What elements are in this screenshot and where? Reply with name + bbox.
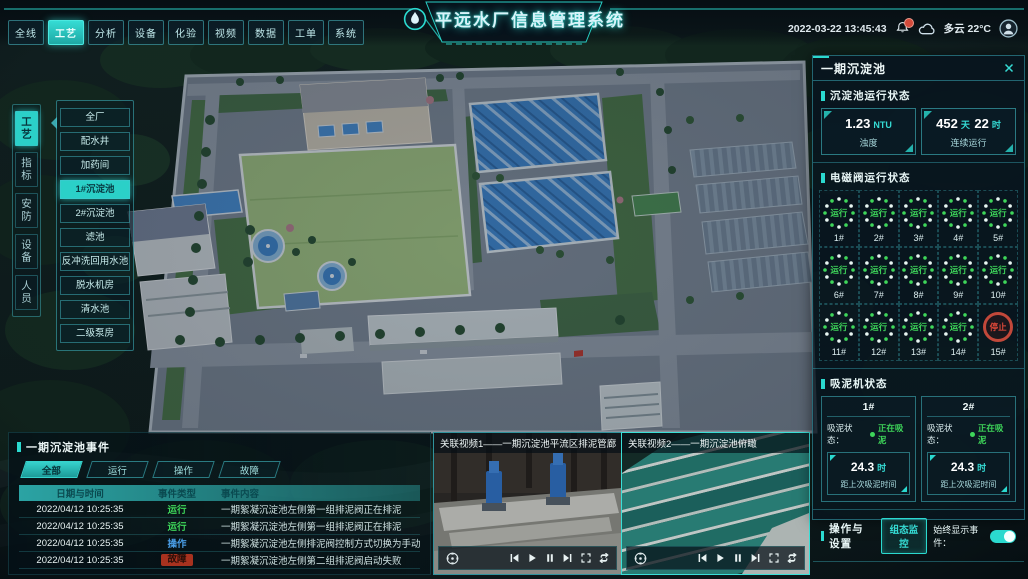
- fullscreen-icon[interactable]: [581, 553, 591, 563]
- submenu-item-qingshuichi[interactable]: 清水池: [60, 300, 130, 319]
- mud-machine-card-2: 2# 吸泥状态：正在吸泥 24.3时距上次吸泥时间: [921, 396, 1016, 502]
- submenu-item-jiayaojian[interactable]: 加药间: [60, 156, 130, 175]
- panel-title: 一期沉淀池: [821, 60, 1002, 77]
- valve-status-grid: 运行1# 运行2# 运行3# 运行4# 运行5# 运行6# 运行7# 运行8# …: [819, 190, 1018, 361]
- always-show-events-toggle[interactable]: [990, 530, 1016, 543]
- video-1-title: 关联视频1——一期沉淀池平流区排泥管廊: [434, 433, 621, 453]
- video-feed-1[interactable]: 关联视频1——一期沉淀池平流区排泥管廊: [433, 432, 622, 575]
- page-title: 平远水厂信息管理系统: [435, 6, 625, 31]
- video-2-title: 关联视频2——一期沉淀池俯瞰: [622, 433, 809, 453]
- skip-back-icon[interactable]: [509, 553, 519, 563]
- valve-indicator-4: 运行4#: [938, 190, 978, 247]
- ptz-control-icon[interactable]: [634, 552, 647, 565]
- submenu-item-tuoshuijifang[interactable]: 脱水机房: [60, 276, 130, 295]
- valve-indicator-7: 运行7#: [859, 247, 899, 304]
- user-avatar[interactable]: [999, 19, 1018, 38]
- play-icon[interactable]: [527, 553, 537, 563]
- fullscreen-icon[interactable]: [769, 553, 779, 563]
- nav-tab-shuju[interactable]: 数据: [248, 20, 284, 45]
- section-title-run-status: 沉淀池运行状态: [830, 88, 911, 103]
- submenu-item-erjibengfang[interactable]: 二级泵房: [60, 324, 130, 343]
- event-row: 2022/04/12 10:25:35运行一期絮凝沉淀池左侧第一组排泥阀正在排泥: [19, 518, 420, 535]
- nav-tab-huayan[interactable]: 化验: [168, 20, 204, 45]
- events-table-header: 日期与时间事件类型事件内容: [19, 485, 420, 501]
- event-filter-tabs: 全部 运行 操作 故障: [9, 459, 430, 478]
- sidebar-tab-gongyi[interactable]: 工艺: [15, 111, 38, 146]
- nav-tab-gongyi[interactable]: 工艺: [48, 20, 84, 45]
- pause-icon[interactable]: [733, 553, 743, 563]
- nav-tab-shipin[interactable]: 视频: [208, 20, 244, 45]
- weather-cloud-icon: [918, 23, 936, 35]
- turbidity-stat-card: 1.23NTU 浊度: [821, 108, 916, 155]
- main-nav: 全线 工艺 分析 设备 化验 视频 数据 工单 系统: [8, 20, 364, 45]
- valve-indicator-3: 运行3#: [899, 190, 939, 247]
- submenu-item-lvchi[interactable]: 滤池: [60, 228, 130, 247]
- sidebar-tab-renyuan[interactable]: 人员: [15, 275, 38, 310]
- status-dot-icon: [970, 432, 975, 437]
- event-row: 2022/04/12 10:25:35运行一期絮凝沉淀池左侧第一组排泥阀正在排泥: [19, 501, 420, 518]
- valve-indicator-10: 运行10#: [978, 247, 1018, 304]
- close-icon[interactable]: [1002, 61, 1016, 75]
- submenu-item-quanchang[interactable]: 全厂: [60, 108, 130, 127]
- section-title-mud: 吸泥机状态: [830, 376, 888, 391]
- section-title-ops: 操作与设置: [829, 521, 874, 551]
- valve-indicator-13: 运行13#: [899, 304, 939, 361]
- valve-indicator-11: 运行11#: [819, 304, 859, 361]
- events-table: 日期与时间事件类型事件内容 2022/04/12 10:25:35运行一期絮凝沉…: [19, 485, 420, 569]
- submenu-item-1-chendianchi[interactable]: 1#沉淀池: [60, 180, 130, 199]
- section-marker-icon: [821, 173, 825, 183]
- section-title-valves: 电磁阀运行状态: [830, 170, 911, 185]
- nav-tab-quanxian[interactable]: 全线: [8, 20, 44, 45]
- dashboard: 全线 工艺 分析 设备 化验 视频 数据 工单 系统 平远水厂信息管理系统 20…: [0, 0, 1028, 579]
- submenu-item-2-chendianchi[interactable]: 2#沉淀池: [60, 204, 130, 223]
- alarm-badge: [904, 18, 914, 28]
- events-panel: 一期沉淀池事件 全部 运行 操作 故障 日期与时间事件类型事件内容 2022/0…: [8, 432, 431, 575]
- section-marker-icon: [821, 91, 825, 101]
- nav-tab-fenxi[interactable]: 分析: [88, 20, 124, 45]
- event-tab-fault[interactable]: 故障: [218, 461, 281, 478]
- valve-indicator-2: 运行2#: [859, 190, 899, 247]
- uptime-stat-card: 452天 22时 连续运行: [921, 108, 1016, 155]
- datetime-display: 2022-03-22 13:45:43: [788, 23, 887, 35]
- valve-indicator-1: 运行1#: [819, 190, 859, 247]
- video-feed-2[interactable]: 关联视频2——一期沉淀池俯瞰: [621, 432, 810, 575]
- event-tab-all[interactable]: 全部: [20, 461, 83, 478]
- video-1-controls: [438, 546, 617, 570]
- process-submenu: 全厂 配水井 加药间 1#沉淀池 2#沉淀池 滤池 反冲洗回用水池 脱水机房 清…: [56, 100, 134, 351]
- notifications-bell-icon[interactable]: [895, 21, 910, 36]
- skip-back-icon[interactable]: [697, 553, 707, 563]
- nav-tab-xitong[interactable]: 系统: [328, 20, 364, 45]
- valve-indicator-15: 停止15#: [978, 304, 1018, 361]
- sidebar-tab-anfang[interactable]: 安防: [15, 193, 38, 228]
- events-title: 一期沉淀池事件: [26, 439, 110, 455]
- section-marker-icon: [821, 379, 825, 389]
- valve-indicator-9: 运行9#: [938, 247, 978, 304]
- pause-icon[interactable]: [545, 553, 555, 563]
- valve-indicator-6: 运行6#: [819, 247, 859, 304]
- section-marker-icon: [821, 531, 824, 541]
- nav-tab-shebei[interactable]: 设备: [128, 20, 164, 45]
- section-marker-icon: [17, 442, 21, 452]
- toggle-knob: [1004, 531, 1015, 542]
- video-2-controls: [626, 546, 805, 570]
- valve-indicator-5: 运行5#: [978, 190, 1018, 247]
- app-logo-water-drop-icon: [403, 7, 427, 31]
- always-show-events-label: 始终显示事件：: [933, 523, 984, 549]
- sedimentation-pool-panel: 一期沉淀池 沉淀池运行状态 1.23NTU 浊度 452天 22时 连续运行 电…: [812, 55, 1025, 520]
- skip-forward-icon[interactable]: [751, 553, 761, 563]
- event-row: 2022/04/12 10:25:35故障一期絮凝沉淀池左侧第二组排泥阀启动失败: [19, 552, 420, 569]
- event-tab-operate[interactable]: 操作: [152, 461, 215, 478]
- submenu-item-fanchongxi[interactable]: 反冲洗回用水池: [60, 252, 130, 271]
- loop-icon[interactable]: [787, 553, 797, 563]
- sidebar-tab-zhibiao[interactable]: 指标: [15, 152, 38, 187]
- event-tab-run[interactable]: 运行: [86, 461, 149, 478]
- valve-indicator-12: 运行12#: [859, 304, 899, 361]
- status-dot-icon: [870, 432, 875, 437]
- sidebar-tab-shebei[interactable]: 设备: [15, 234, 38, 269]
- skip-forward-icon[interactable]: [563, 553, 573, 563]
- event-row: 2022/04/12 10:25:35操作一期絮凝沉淀池左侧排泥阀控制方式切换为…: [19, 535, 420, 552]
- valve-indicator-8: 运行8#: [899, 247, 939, 304]
- scada-monitor-button[interactable]: 组态监控: [881, 518, 928, 554]
- submenu-item-peishuijing[interactable]: 配水井: [60, 132, 130, 151]
- play-icon[interactable]: [715, 553, 725, 563]
- top-bar: 全线 工艺 分析 设备 化验 视频 数据 工单 系统 平远水厂信息管理系统 20…: [0, 0, 1028, 46]
- nav-tab-gongdan[interactable]: 工单: [288, 20, 324, 45]
- mud-machine-card-1: 1# 吸泥状态：正在吸泥 24.3时距上次吸泥时间: [821, 396, 916, 502]
- weather-text: 多云 22°C: [944, 21, 991, 36]
- ptz-control-icon[interactable]: [446, 552, 459, 565]
- sidebar-category-tabs: 工艺 指标 安防 设备 人员: [12, 104, 41, 317]
- valve-indicator-14: 运行14#: [938, 304, 978, 361]
- loop-icon[interactable]: [599, 553, 609, 563]
